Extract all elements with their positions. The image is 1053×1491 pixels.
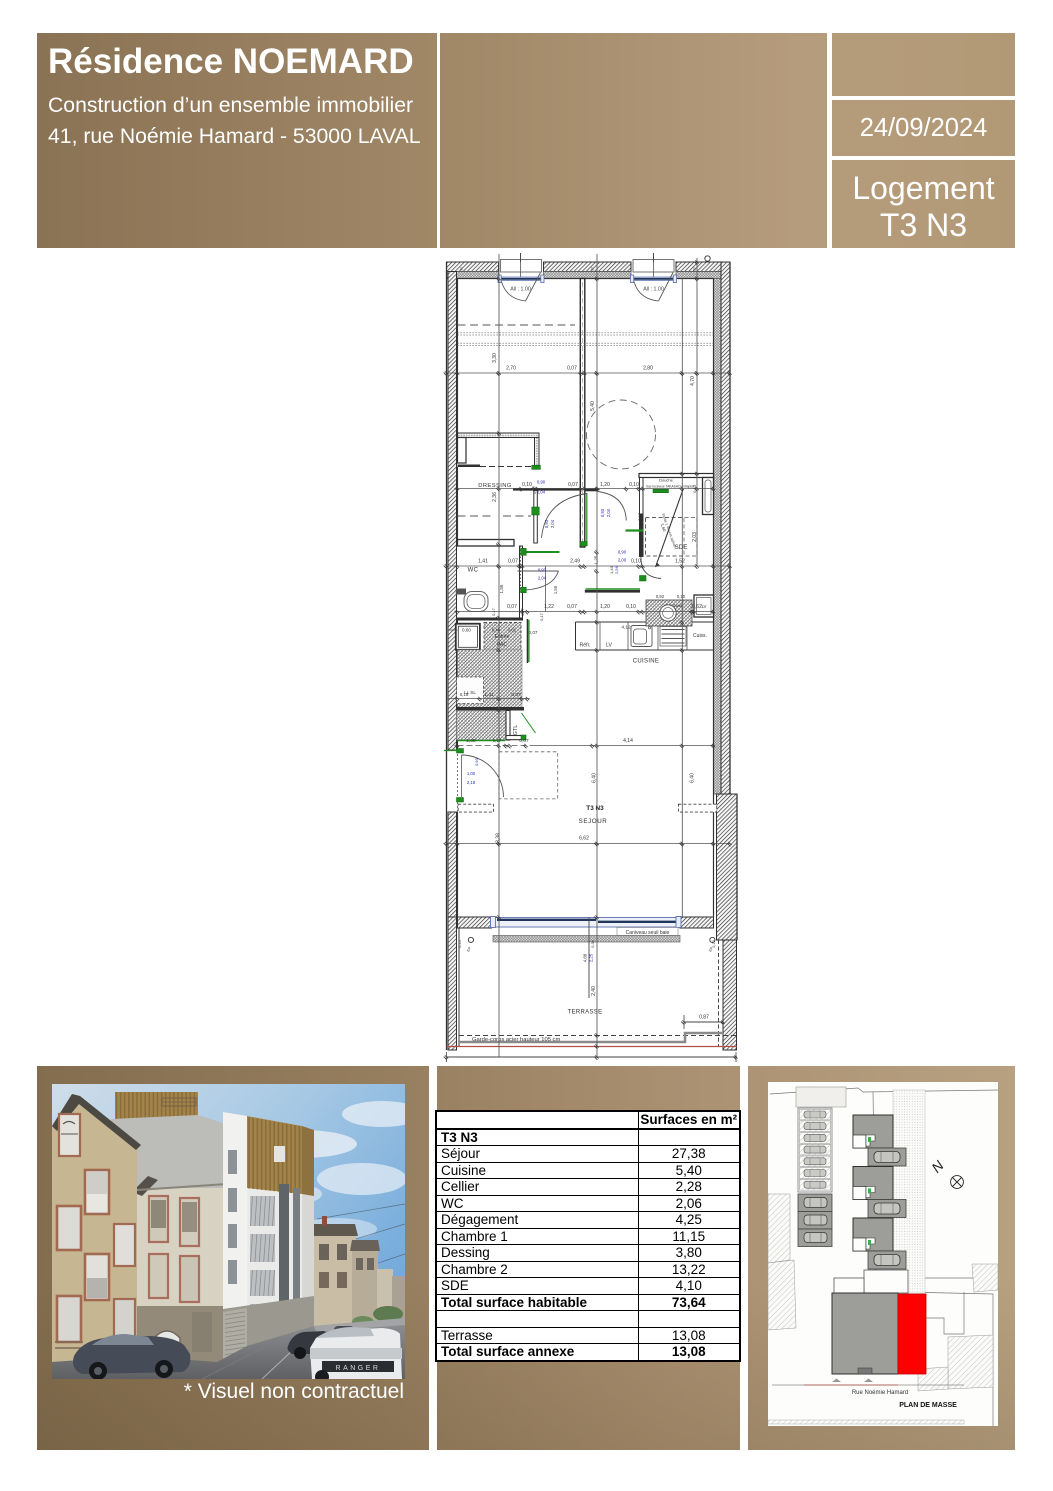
svg-text:1,41: 1,41 xyxy=(478,559,488,565)
svg-text:0,93: 0,93 xyxy=(544,519,549,528)
svg-text:2,04: 2,04 xyxy=(537,490,546,495)
svg-text:0,17: 0,17 xyxy=(532,485,537,494)
svg-text:0,17: 0,17 xyxy=(539,612,544,621)
svg-text:0,17: 0,17 xyxy=(491,607,496,616)
svg-text:0,93: 0,93 xyxy=(538,568,547,573)
svg-text:2,00: 2,00 xyxy=(618,558,627,563)
svg-text:0,17: 0,17 xyxy=(493,738,502,743)
svg-text:2,70: 2,70 xyxy=(506,366,516,372)
svg-text:3,38: 3,38 xyxy=(496,833,502,843)
svg-text:2,18: 2,18 xyxy=(467,780,476,785)
svg-text:0,07: 0,07 xyxy=(567,604,577,610)
svg-text:0,61: 0,61 xyxy=(508,628,517,633)
svg-text:Rue Noémie Hamard: Rue Noémie Hamard xyxy=(852,1390,908,1396)
svg-text:1,55: 1,55 xyxy=(499,584,504,593)
svg-text:All : 1.00: All : 1.00 xyxy=(510,287,531,293)
svg-text:0,07: 0,07 xyxy=(507,604,517,610)
svg-text:LV: LV xyxy=(606,643,612,649)
svg-text:2,04: 2,04 xyxy=(606,508,611,517)
svg-text:0,46: 0,46 xyxy=(492,628,501,633)
svg-text:Cuiss.: Cuiss. xyxy=(693,633,707,639)
svg-text:1,20: 1,20 xyxy=(600,604,610,610)
svg-text:6,40: 6,40 xyxy=(690,773,696,783)
svg-text:0,10: 0,10 xyxy=(692,484,697,493)
svg-text:0,10: 0,10 xyxy=(631,559,641,565)
svg-text:EP: EP xyxy=(466,946,472,953)
svg-text:0,92: 0,92 xyxy=(656,594,665,599)
svg-text:2,36: 2,36 xyxy=(492,492,498,502)
svg-text:2,80: 2,80 xyxy=(643,366,653,372)
svg-text:4,70: 4,70 xyxy=(690,376,696,386)
svg-text:0,07: 0,07 xyxy=(511,692,521,698)
svg-text:0,17: 0,17 xyxy=(520,607,525,616)
svg-text:0,90: 0,90 xyxy=(537,480,546,485)
svg-text:2,04: 2,04 xyxy=(550,519,555,528)
svg-text:0,10: 0,10 xyxy=(712,940,716,947)
svg-text:1,55: 1,55 xyxy=(553,585,558,594)
svg-text:5,40: 5,40 xyxy=(590,401,596,411)
svg-text:1,22: 1,22 xyxy=(544,604,554,610)
svg-text:CUISINE: CUISINE xyxy=(633,659,659,665)
svg-text:0,10: 0,10 xyxy=(677,594,686,599)
svg-text:GTL: GTL xyxy=(513,725,519,735)
svg-text:SEJOUR: SEJOUR xyxy=(579,818,608,825)
svg-text:3,30: 3,30 xyxy=(492,353,498,363)
svg-text:RANGER: RANGER xyxy=(336,1365,381,1372)
svg-text:0,87: 0,87 xyxy=(699,1015,709,1021)
svg-text:Sortie: Sortie xyxy=(673,604,683,608)
svg-text:6,40: 6,40 xyxy=(592,773,598,783)
svg-text:2,49: 2,49 xyxy=(570,559,580,565)
svg-text:Caniveau seuil baie: Caniveau seuil baie xyxy=(626,930,670,936)
svg-text:4,12: 4,12 xyxy=(621,625,631,631)
svg-text:1,41: 1,41 xyxy=(484,692,494,698)
svg-text:0,93: 0,93 xyxy=(600,508,605,517)
svg-text:T3 N3: T3 N3 xyxy=(586,805,604,812)
svg-text:bac receveur TAKASHO extraplat: bac receveur TAKASHO extraplat xyxy=(646,485,693,489)
svg-text:4,88: 4,88 xyxy=(583,953,588,962)
svg-text:0,90: 0,90 xyxy=(618,550,627,555)
svg-text:Douche: Douche xyxy=(659,478,674,483)
svg-text:0,07: 0,07 xyxy=(529,630,538,635)
svg-text:DRESSING: DRESSING xyxy=(478,483,512,489)
svg-text:0,07: 0,07 xyxy=(519,738,529,744)
svg-text:2,40: 2,40 xyxy=(591,986,597,996)
svg-text:0,07: 0,07 xyxy=(508,559,518,565)
svg-text:Garde-corps acier hauteur 105: Garde-corps acier hauteur 105 cm xyxy=(472,1037,560,1043)
svg-text:1,20: 1,20 xyxy=(600,482,610,488)
svg-text:0,38: 0,38 xyxy=(591,940,595,947)
svg-text:30: 30 xyxy=(693,267,697,271)
svg-text:0,10: 0,10 xyxy=(626,604,636,610)
svg-text:0,10: 0,10 xyxy=(458,940,462,947)
svg-text:30: 30 xyxy=(460,267,464,271)
svg-text:0,07: 0,07 xyxy=(568,482,578,488)
svg-text:Entrée: Entrée xyxy=(495,634,510,640)
svg-text:1,00: 1,00 xyxy=(467,771,476,776)
svg-text:1,05: 1,05 xyxy=(466,738,476,744)
svg-text:0,15: 0,15 xyxy=(460,692,469,697)
svg-text:0,93: 0,93 xyxy=(474,757,479,766)
svg-text:0,60: 0,60 xyxy=(462,628,471,633)
svg-text:4,14: 4,14 xyxy=(623,738,633,744)
svg-text:2,56: 2,56 xyxy=(614,565,619,574)
svg-text:PLAN DE MASSE: PLAN DE MASSE xyxy=(899,1402,957,1409)
svg-text:WC: WC xyxy=(468,568,479,574)
svg-text:0,07: 0,07 xyxy=(567,366,577,372)
svg-text:LV: LV xyxy=(702,604,707,609)
svg-text:0,62: 0,62 xyxy=(692,604,702,610)
svg-text:All : 1.00: All : 1.00 xyxy=(643,287,664,293)
svg-text:6,62: 6,62 xyxy=(579,836,589,842)
svg-text:1,52: 1,52 xyxy=(675,559,685,565)
svg-text:0,10: 0,10 xyxy=(522,482,532,488)
svg-text:1,25: 1,25 xyxy=(594,555,599,564)
svg-text:0,17: 0,17 xyxy=(637,512,642,521)
svg-text:30: 30 xyxy=(591,267,595,271)
svg-text:2,04: 2,04 xyxy=(538,576,547,581)
svg-text:2,25: 2,25 xyxy=(589,953,594,962)
svg-text:Réfr.: Réfr. xyxy=(580,643,591,649)
